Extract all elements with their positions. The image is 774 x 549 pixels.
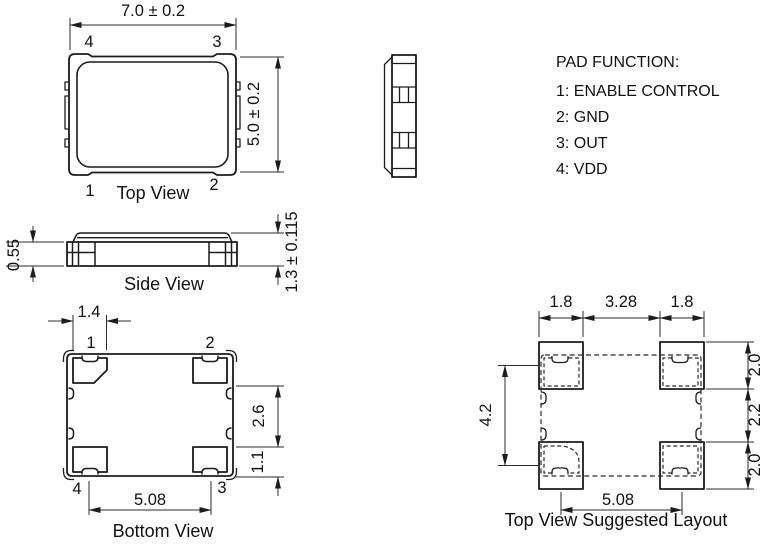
- top-view: 7.0 ± 0.2 5.0 ± 0.2 4 3 1 2 Top View: [65, 2, 284, 203]
- bottom-view-package-outline: [67, 354, 233, 476]
- bottom-view-pin-3: 3: [217, 479, 226, 497]
- end-view-lid-flange: [385, 57, 393, 175]
- layout-center-span-text: 3.28: [605, 293, 637, 311]
- oscillator-package-drawing: 7.0 ± 0.2 5.0 ± 0.2 4 3 1 2 Top View PAD…: [0, 0, 774, 549]
- pad-function-item-1: 1: ENABLE CONTROL: [556, 83, 720, 100]
- layout-row-gap-text: 2.2: [746, 404, 764, 427]
- layout-vertical-pitch-text: 4.2: [477, 404, 495, 427]
- land-pad-top-left: [539, 342, 583, 389]
- end-view-body: [392, 55, 416, 177]
- mechanical-drawing-canvas: 7.0 ± 0.2 5.0 ± 0.2 4 3 1 2 Top View PAD…: [0, 0, 774, 549]
- side-view-label: Side View: [124, 274, 205, 294]
- bottom-view-pin-2: 2: [205, 334, 214, 352]
- suggested-layout: 1.8 3.28 1.8 2.0 2.2 2.0 4.2 5.08 Top Vi…: [477, 293, 764, 530]
- end-view: [385, 55, 417, 177]
- layout-pad-width-left-text: 1.8: [550, 293, 573, 311]
- top-height-dimension-text: 5.0 ± 0.2: [245, 82, 263, 146]
- total-height-extension-lines: [231, 233, 284, 266]
- top-width-dimension-text: 7.0 ± 0.2: [121, 2, 185, 20]
- bottom-view: 1 2 4 3 1.4 2.6 1.1 5.08 Bottom View: [48, 303, 284, 541]
- layout-horizontal-pitch-text: 5.08: [602, 491, 634, 509]
- top-view-package-outline: [69, 54, 236, 175]
- layout-top-extension-lines: [539, 311, 704, 337]
- pad-width-dimension-text: 1.4: [78, 303, 101, 321]
- pad-thickness-dimension-text: 0.55: [5, 239, 23, 271]
- package-side-castellations: [541, 392, 701, 440]
- top-view-pin-1: 1: [85, 182, 94, 200]
- pad-function-item-3: 3: OUT: [556, 135, 608, 152]
- layout-pad-width-right-text: 1.8: [671, 293, 694, 311]
- bottom-view-pin-4: 4: [72, 480, 81, 498]
- bottom-view-label: Bottom View: [113, 521, 215, 541]
- top-width-extension-lines: [70, 18, 236, 50]
- pad-gap-dimension-text: 2.6: [250, 405, 268, 428]
- layout-pad-height-bottom-text: 2.0: [746, 454, 764, 477]
- pad-pitch-dimension-text: 5.08: [134, 491, 166, 509]
- land-pad-bottom-left: [539, 442, 583, 489]
- total-height-dimension-text: 1.3 ± 0.115: [283, 211, 301, 292]
- suggested-layout-label: Top View Suggested Layout: [505, 510, 728, 530]
- top-view-pin-2: 2: [209, 176, 218, 194]
- pad-function-item-2: 2: GND: [556, 109, 609, 126]
- layout-pad-height-top-text: 2.0: [746, 354, 764, 377]
- side-view-body: [67, 242, 237, 266]
- top-view-pin-4: 4: [84, 33, 93, 51]
- top-view-pin-3: 3: [212, 33, 221, 51]
- pad-function-legend: PAD FUNCTION: 1: ENABLE CONTROL 2: GND 3…: [556, 54, 720, 178]
- layout-vertical-pitch-extension-lines: [498, 366, 538, 466]
- top-view-label: Top View: [117, 183, 191, 203]
- pad-function-item-4: 4: VDD: [556, 161, 608, 178]
- bottom-view-pin-1: 1: [86, 334, 95, 352]
- pad-height-dimension-text: 1.1: [249, 451, 267, 474]
- pad-function-title: PAD FUNCTION:: [556, 54, 679, 71]
- side-view: 0.55 1.3 ± 0.115 Side View: [5, 211, 301, 294]
